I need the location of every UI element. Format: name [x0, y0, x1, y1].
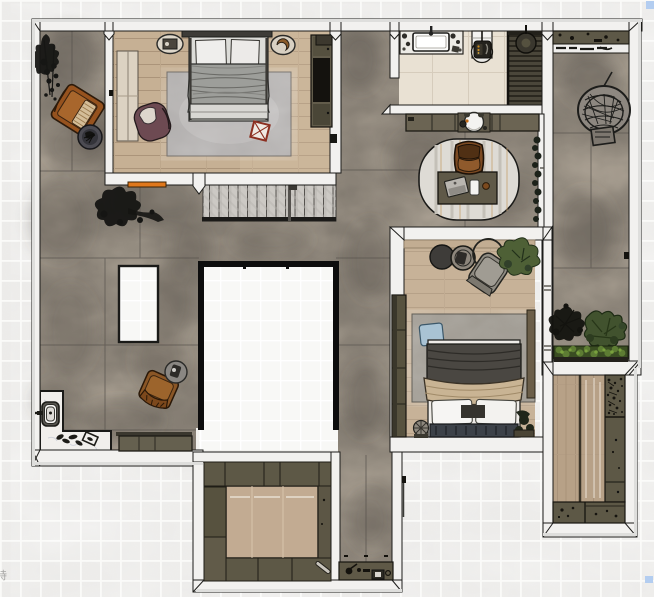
svg-text:持: 持 — [0, 568, 7, 582]
